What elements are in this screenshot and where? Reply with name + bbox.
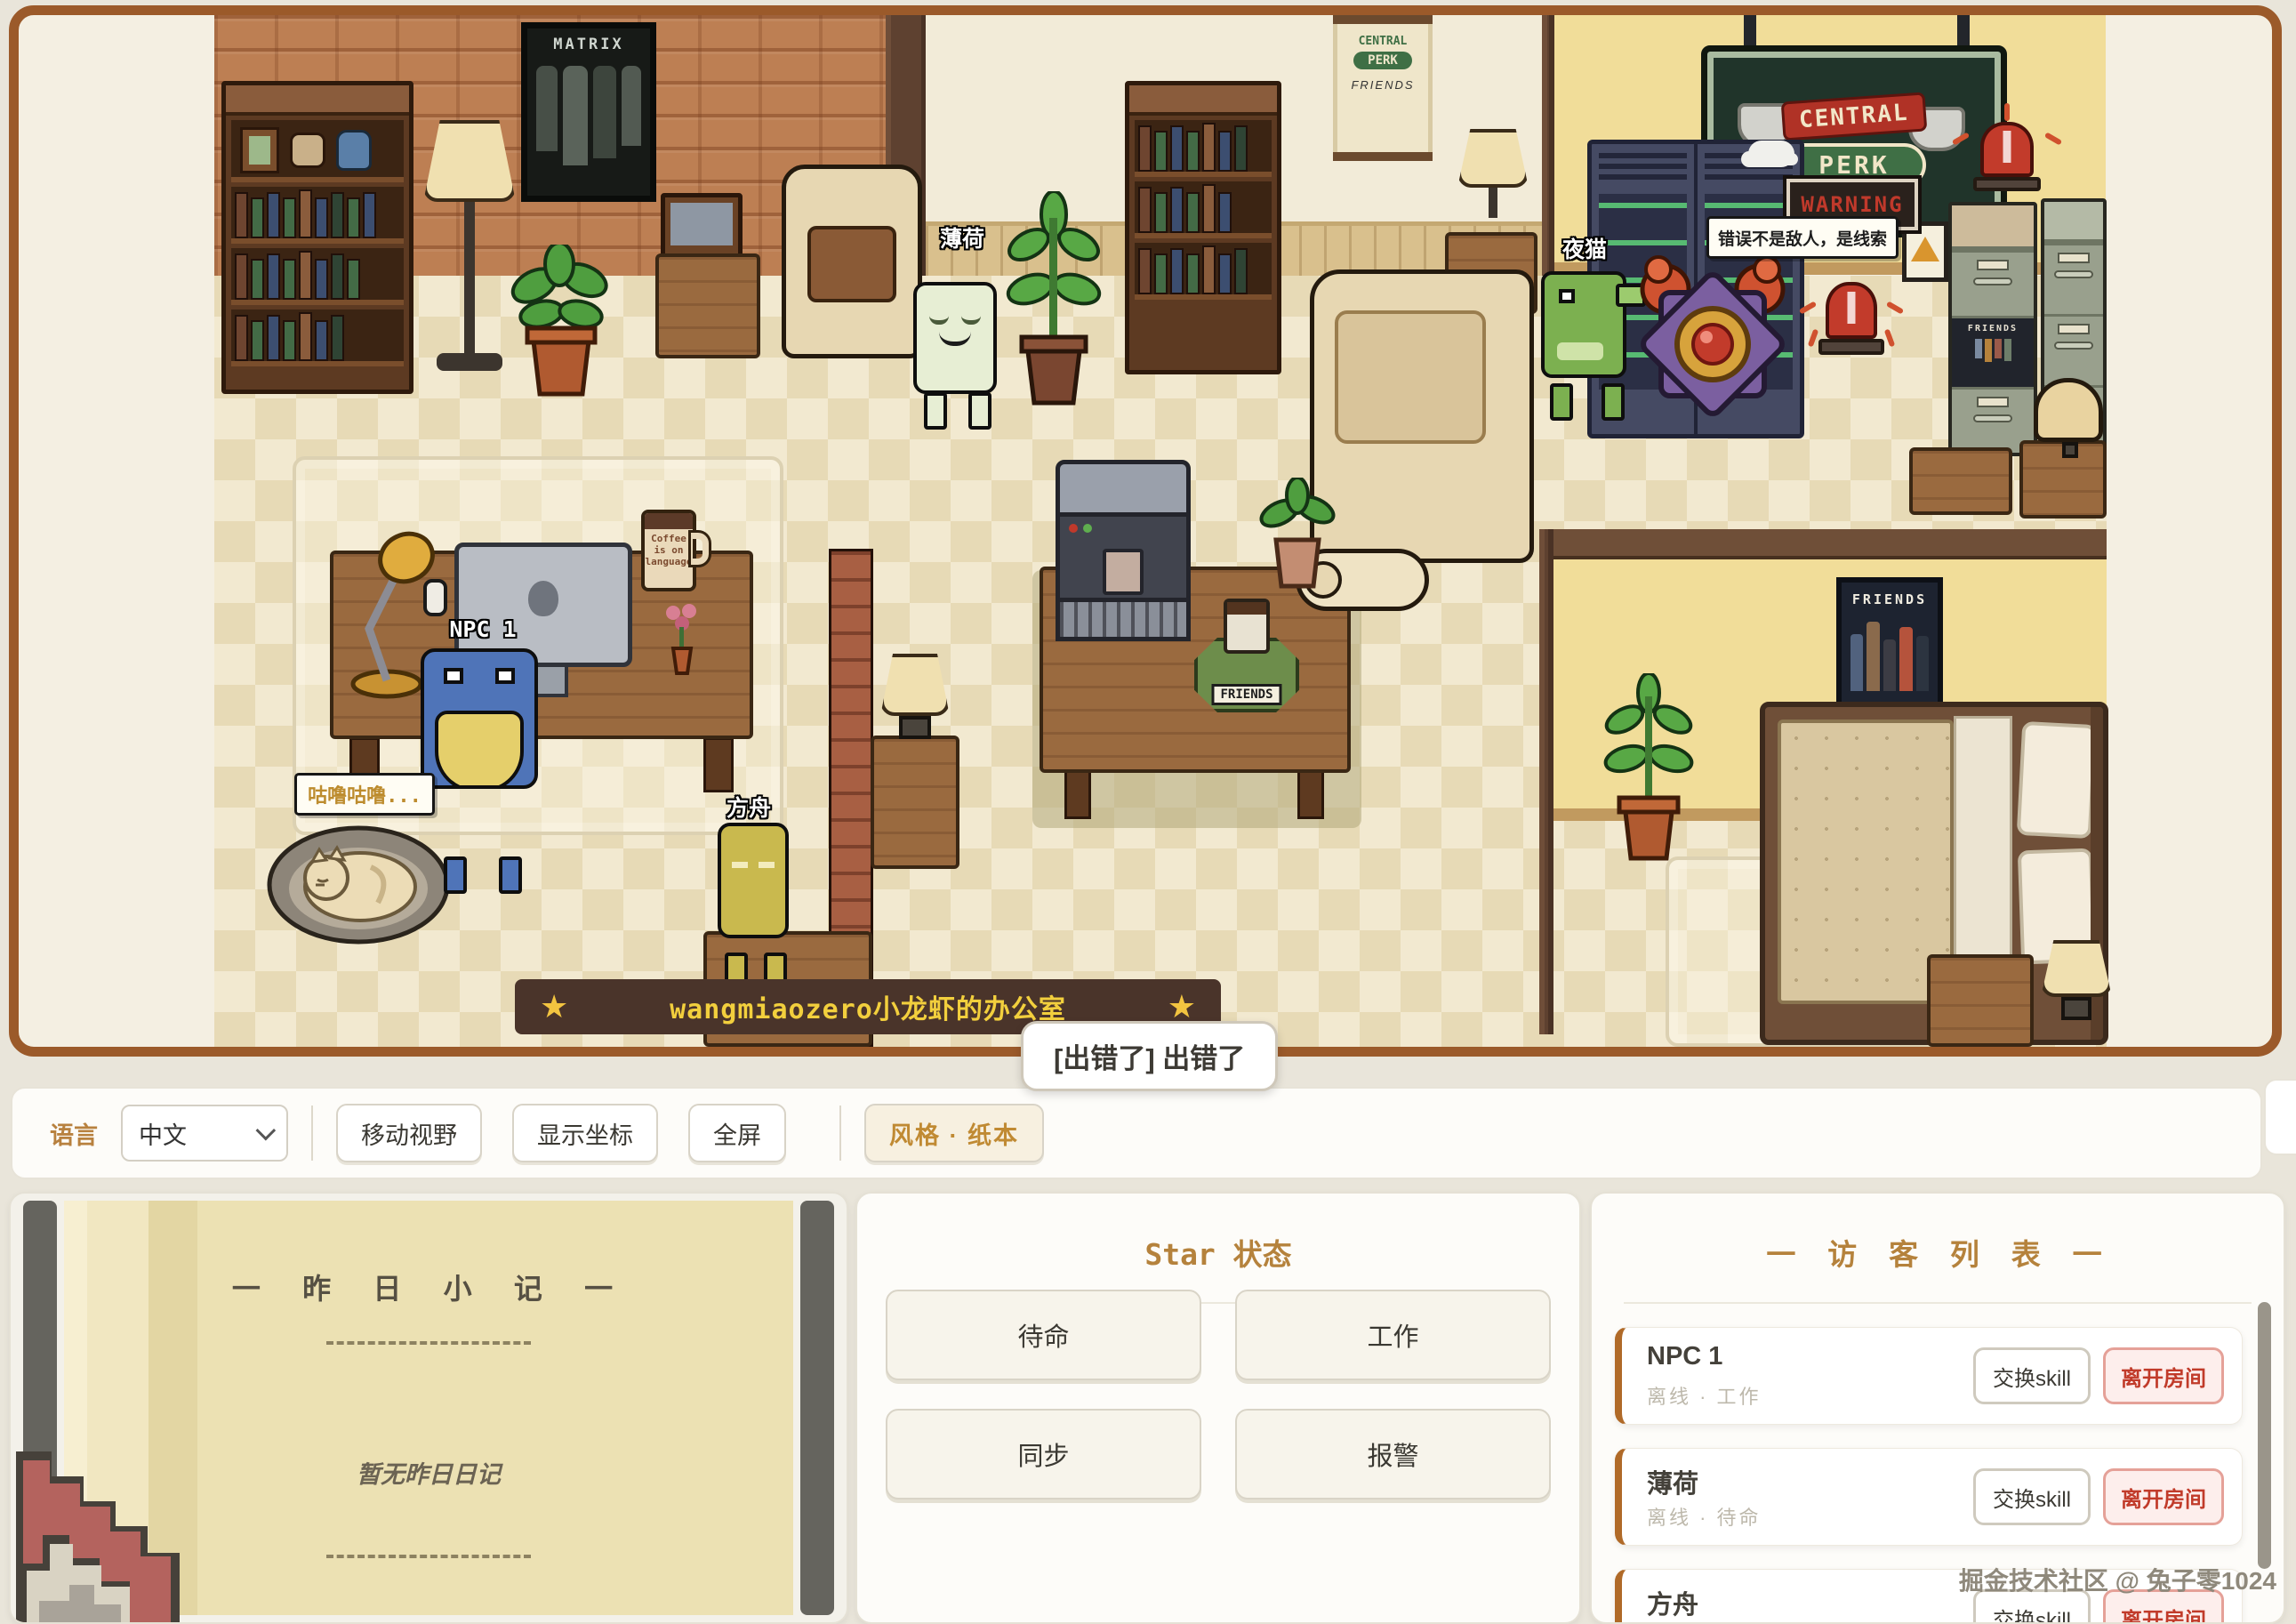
yemao-bubble-text: 错误不是敌人，是线索: [1718, 226, 1887, 250]
yemao-speech-bubble: 错误不是敌人，是线索: [1706, 216, 1899, 259]
mug-handle: [691, 533, 709, 565]
visitor-name: NPC 1: [1647, 1342, 1722, 1371]
standby-button[interactable]: 待命: [886, 1290, 1201, 1380]
espresso-cup: [1103, 549, 1144, 595]
coaster-label: FRIENDS: [1211, 684, 1281, 705]
book: [299, 189, 312, 238]
book: [1218, 192, 1232, 233]
book: [267, 253, 280, 300]
bedside-table: [1927, 954, 2034, 1047]
machine-led-red: [1069, 524, 1078, 533]
book: [299, 312, 312, 361]
starmie-crab[interactable]: [1619, 237, 1806, 442]
visitor-name: 薄荷: [1647, 1463, 1698, 1500]
npc1-bubble-text: 咕噜咕噜...: [308, 780, 421, 808]
book: [1234, 248, 1248, 294]
bottle-icon: [336, 130, 372, 171]
swap-skill-button[interactable]: 交换skill: [1973, 1347, 2091, 1404]
book: [331, 192, 344, 238]
visitor-card: NPC 1 离线 · 工作 交换skill 离开房间: [1615, 1327, 2243, 1425]
bedside-lamp: [2035, 940, 2117, 1047]
table-plant: [1248, 478, 1345, 611]
armchair-seat-cushion: [1335, 310, 1486, 444]
armchair-small: [782, 165, 922, 358]
book: [1202, 184, 1216, 233]
book: [1154, 131, 1168, 172]
desk-leg: [703, 737, 734, 792]
visitors-divider: [1624, 1302, 2252, 1304]
visitors-scrollbar[interactable]: [2258, 1302, 2271, 1569]
book: [283, 259, 296, 300]
book: [1218, 253, 1232, 294]
sign-chain: [1957, 10, 1970, 49]
yemao-leg: [1550, 383, 1573, 421]
toast-text: [出错了] 出错了: [1054, 1043, 1245, 1074]
npc1-face-shield: [435, 711, 524, 789]
game-canvas[interactable]: MATRIX: [9, 5, 2282, 1057]
table-leg: [1064, 769, 1091, 819]
npc1-eye: [444, 668, 463, 684]
book: [331, 315, 344, 361]
visitor-name: 方舟: [1647, 1584, 1698, 1621]
book: [315, 259, 328, 300]
sync-button[interactable]: 同步: [886, 1409, 1201, 1499]
bohe-leg: [924, 392, 947, 430]
character-fangzhou[interactable]: [718, 823, 794, 997]
wall-pillar-mid: [1542, 15, 1554, 278]
figure: [563, 66, 588, 165]
coffee-mug: Coffee is on language: [641, 510, 709, 595]
shelf-books-row: [231, 248, 404, 305]
book: [235, 192, 248, 238]
matrix-poster: MATRIX: [521, 22, 656, 202]
swap-skill-button[interactable]: 交换skill: [1973, 1468, 2091, 1525]
photo-screen: [670, 203, 733, 245]
book: [251, 320, 264, 361]
toolbar-divider: [311, 1105, 313, 1161]
book: [1154, 192, 1168, 233]
shelf-books-row: [231, 187, 404, 244]
star-icon: ★: [1168, 988, 1196, 1025]
shelf-books-row: [231, 310, 404, 366]
bohe-leg: [968, 392, 991, 430]
machine-led-green: [1083, 524, 1092, 533]
error-toast: [出错了] 出错了: [1021, 1021, 1278, 1091]
npc1-name-label: NPC 1: [449, 616, 516, 642]
toolbar-divider: [839, 1105, 841, 1161]
armchair-cushion: [807, 226, 896, 302]
bedroom-wall-top-beam: [1539, 529, 2107, 559]
yemao-name-label: 夜猫: [1562, 232, 1607, 264]
character-bohe[interactable]: [913, 282, 1002, 442]
book: [1234, 125, 1248, 172]
book: [1202, 123, 1216, 172]
fangzhou-eye: [759, 862, 775, 868]
scroll-central: CENTRAL: [1337, 35, 1428, 48]
friends-poster-text: FRIENDS: [1842, 591, 1938, 607]
work-button[interactable]: 工作: [1235, 1290, 1551, 1380]
matrix-title: MATRIX: [527, 36, 650, 53]
potted-plant-middle: [1000, 191, 1107, 415]
sign-chain: [1744, 10, 1756, 49]
scroll-friends: FRIENDS: [1337, 78, 1428, 92]
character-npc1[interactable]: NPC 1: [421, 648, 545, 860]
watermark: 掘金技术社区 @ 兔子零1024: [1939, 1562, 2276, 1597]
book: [347, 197, 360, 238]
photo-inner: [249, 136, 270, 165]
star-status-title: Star 状态: [857, 1231, 1579, 1274]
diary-divider-bottom: [326, 1555, 531, 1558]
npc1-eye: [495, 668, 515, 684]
warning-picture-frame: [1902, 221, 1948, 282]
bookshelf-left: [221, 81, 413, 394]
central-perk-scroll: CENTRAL PERK FRIENDS: [1333, 15, 1433, 173]
bedroom-plant: [1600, 673, 1698, 878]
cabinet-friends-poster: FRIENDS: [1952, 324, 2034, 334]
npc1-leg: [499, 856, 522, 894]
matrix-figures: [527, 66, 650, 165]
language-select[interactable]: 中文: [121, 1105, 288, 1162]
bookshelf-middle: [1125, 81, 1281, 374]
book: [1170, 248, 1184, 294]
tv-stand: [655, 253, 760, 358]
visitor-status: 离线 · 工作: [1647, 1381, 1762, 1410]
visitor-card: 薄荷 离线 · 待命 交换skill 离开房间: [1615, 1448, 2243, 1546]
book: [331, 253, 344, 300]
star-icon: ★: [540, 988, 568, 1025]
shelf-books-row: [1135, 243, 1272, 300]
diary-pixel-art: [16, 1419, 221, 1624]
room-banner-text: wangmiaozero小龙虾的办公室: [670, 987, 1066, 1026]
book: [1186, 131, 1200, 172]
book: [267, 315, 280, 361]
book: [1202, 245, 1216, 294]
book: [1138, 187, 1152, 233]
diary-divider-top: [326, 1341, 531, 1345]
table-leg: [1297, 769, 1324, 819]
cloud-icon: [1748, 141, 1794, 167]
show-coordinates-button[interactable]: 显示坐标: [512, 1104, 658, 1162]
leave-room-button[interactable]: 离开房间: [2103, 1468, 2224, 1525]
warning-triangle-icon: [1911, 237, 1939, 261]
book: [251, 197, 264, 238]
computer-mouse: [423, 579, 447, 616]
book: [315, 197, 328, 238]
toolbar-overflow-panel: [2264, 1079, 2296, 1155]
book: [235, 315, 248, 361]
small-desk: [1909, 447, 2012, 515]
flower-vase: [662, 602, 702, 677]
scroll-perk: PERK: [1353, 52, 1412, 69]
rack-vents: [1599, 153, 1687, 183]
book: [251, 259, 264, 300]
leave-room-button[interactable]: 离开房间: [2103, 1347, 2224, 1404]
book: [1138, 248, 1152, 294]
apple-logo-icon: [528, 581, 558, 616]
fangzhou-name-label: 方舟: [727, 791, 771, 823]
fullscreen-button[interactable]: 全屏: [688, 1104, 786, 1162]
book: [1218, 131, 1232, 172]
book: [1154, 253, 1168, 294]
figure: [622, 66, 641, 146]
central-text: CENTRAL: [1781, 92, 1927, 141]
table-lamp-mid: [1452, 129, 1534, 236]
figure: [536, 66, 558, 151]
hall-lamp: [878, 654, 952, 752]
figure: [593, 66, 616, 158]
bookshelf-top: [1129, 85, 1277, 116]
friends-coaster: FRIENDS: [1194, 606, 1299, 712]
book: [1170, 125, 1184, 172]
chevron-down-icon: [256, 1121, 277, 1141]
shelf-books-row: [1135, 120, 1272, 177]
diary-title: 一 昨 日 小 记 一: [64, 1266, 793, 1307]
npc1-leg: [444, 856, 467, 894]
bedroom-wall-left-edge: [1539, 529, 1553, 1034]
shelf-decor-row: [231, 120, 404, 182]
book: [347, 259, 360, 300]
bed-pillow: [2017, 721, 2098, 839]
shelf-books-row: [1135, 181, 1272, 238]
visitors-panel: 一 访 客 列 表 一 NPC 1 离线 · 工作 交换skill 离开房间 薄…: [1590, 1192, 2285, 1624]
bohe-smile: [939, 332, 971, 346]
book: [1186, 253, 1200, 294]
yemao-eye: [1559, 289, 1575, 303]
bohe-eye: [961, 316, 981, 325]
tv-photo-frame: [661, 193, 743, 259]
bohe-eye: [929, 316, 949, 325]
book: [299, 251, 312, 300]
book: [283, 320, 296, 361]
jar-icon: [290, 133, 325, 168]
alarm-button[interactable]: 报警: [1235, 1409, 1551, 1499]
star-status-panel: Star 状态 待命 工作 同步 报警: [855, 1192, 1581, 1624]
book: [283, 197, 296, 238]
potted-plant-left: [499, 245, 623, 401]
visitors-title: 一 访 客 列 表 一: [1592, 1231, 2284, 1274]
hall-side-table: [871, 736, 959, 869]
office-chair: [2034, 378, 2107, 470]
visitor-status: 离线 · 待命: [1647, 1502, 1762, 1531]
diary-spine-right: [800, 1201, 834, 1615]
book: [315, 320, 328, 361]
book: [363, 192, 376, 238]
book: [267, 192, 280, 238]
book: [235, 253, 248, 300]
lamp-shade: [423, 120, 516, 202]
lamp-base: [437, 353, 502, 371]
mug-coffee-top: [645, 513, 693, 529]
language-label: 语言: [50, 1116, 98, 1151]
book: [1186, 192, 1200, 233]
bookshelf-top: [226, 85, 409, 116]
style-paper-button[interactable]: 风格 · 纸本: [864, 1104, 1044, 1162]
photo-frame-icon: [240, 127, 279, 173]
bohe-name-label: 薄荷: [940, 221, 984, 253]
toolbar: 语言 中文 移动视野 显示坐标 全屏 风格 · 纸本: [11, 1087, 2262, 1179]
cabinet-siren: [1971, 122, 2043, 207]
book: [1170, 187, 1184, 233]
npc1-speech-bubble: 咕噜咕噜...: [294, 773, 435, 816]
lamp-pole: [464, 202, 475, 353]
yemao-belly: [1557, 342, 1603, 360]
floor-siren: [1817, 282, 1886, 371]
drip-tray: [1056, 602, 1191, 641]
mug-text: Coffee is on language: [645, 533, 693, 567]
diary-panel: 一 昨 日 小 记 一 暂无昨日日记: [9, 1192, 848, 1624]
file-cabinet-1: FRIENDS: [1948, 202, 2037, 456]
fangzhou-eye: [732, 862, 748, 868]
move-view-button[interactable]: 移动视野: [336, 1104, 482, 1162]
book: [1138, 125, 1152, 172]
espresso-machine: [1056, 460, 1191, 673]
language-value: 中文: [139, 1116, 187, 1151]
